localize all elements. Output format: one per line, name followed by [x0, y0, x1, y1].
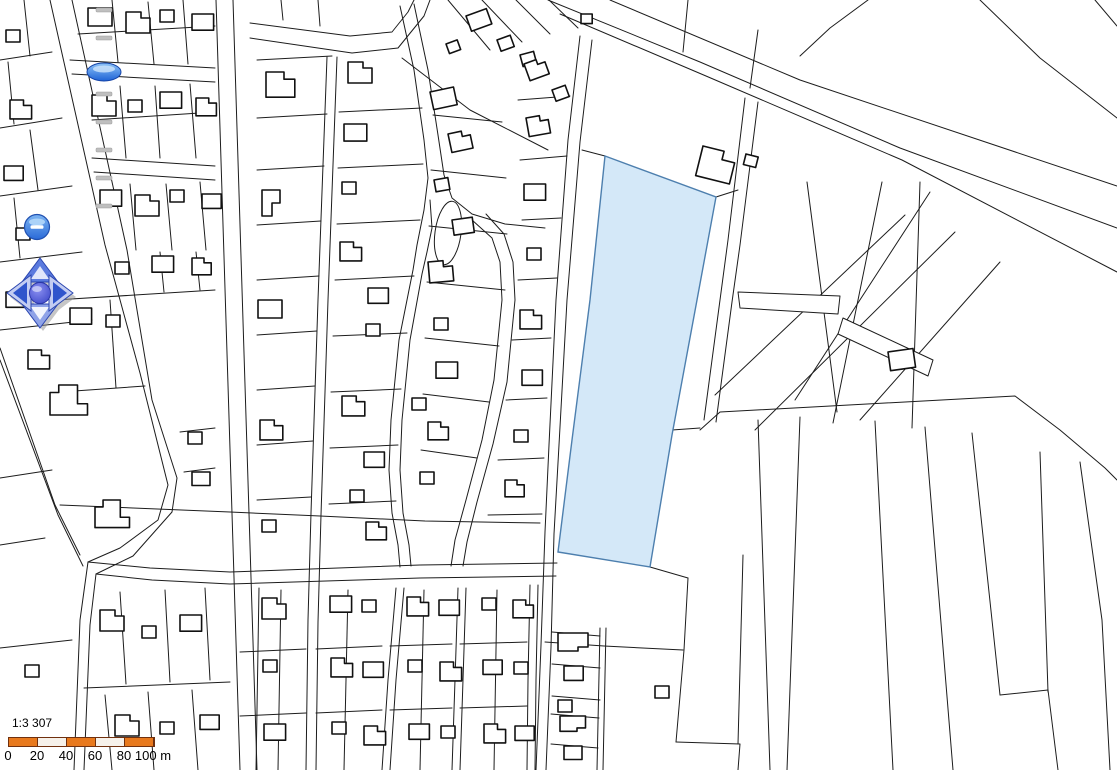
minus-icon [31, 225, 44, 229]
zoom-slider[interactable] [96, 8, 112, 208]
scale-tick-label: 20 [30, 748, 44, 763]
pan-center-button[interactable] [30, 283, 51, 304]
pan-control [7, 258, 76, 331]
zoom-out-button[interactable] [25, 215, 50, 240]
pan-left-button[interactable] [7, 275, 31, 311]
scale-bar: 1:3 307 020406080100 m [0, 712, 200, 770]
scale-tick-label: 0 [4, 748, 11, 763]
scale-tick-label: 40 [59, 748, 73, 763]
scale-tick-label: 60 [88, 748, 102, 763]
map-navigation-controls [0, 0, 200, 360]
selected-parcel-highlight[interactable] [558, 156, 716, 567]
scale-tick-label: 100 m [135, 748, 171, 763]
scale-bar-labels: 020406080100 m [0, 712, 200, 770]
button-shine [29, 219, 45, 226]
scale-tick-label: 80 [117, 748, 131, 763]
map-viewport: 1:3 307 020406080100 m [0, 0, 1117, 770]
zoom-slider-handle[interactable] [87, 63, 121, 81]
